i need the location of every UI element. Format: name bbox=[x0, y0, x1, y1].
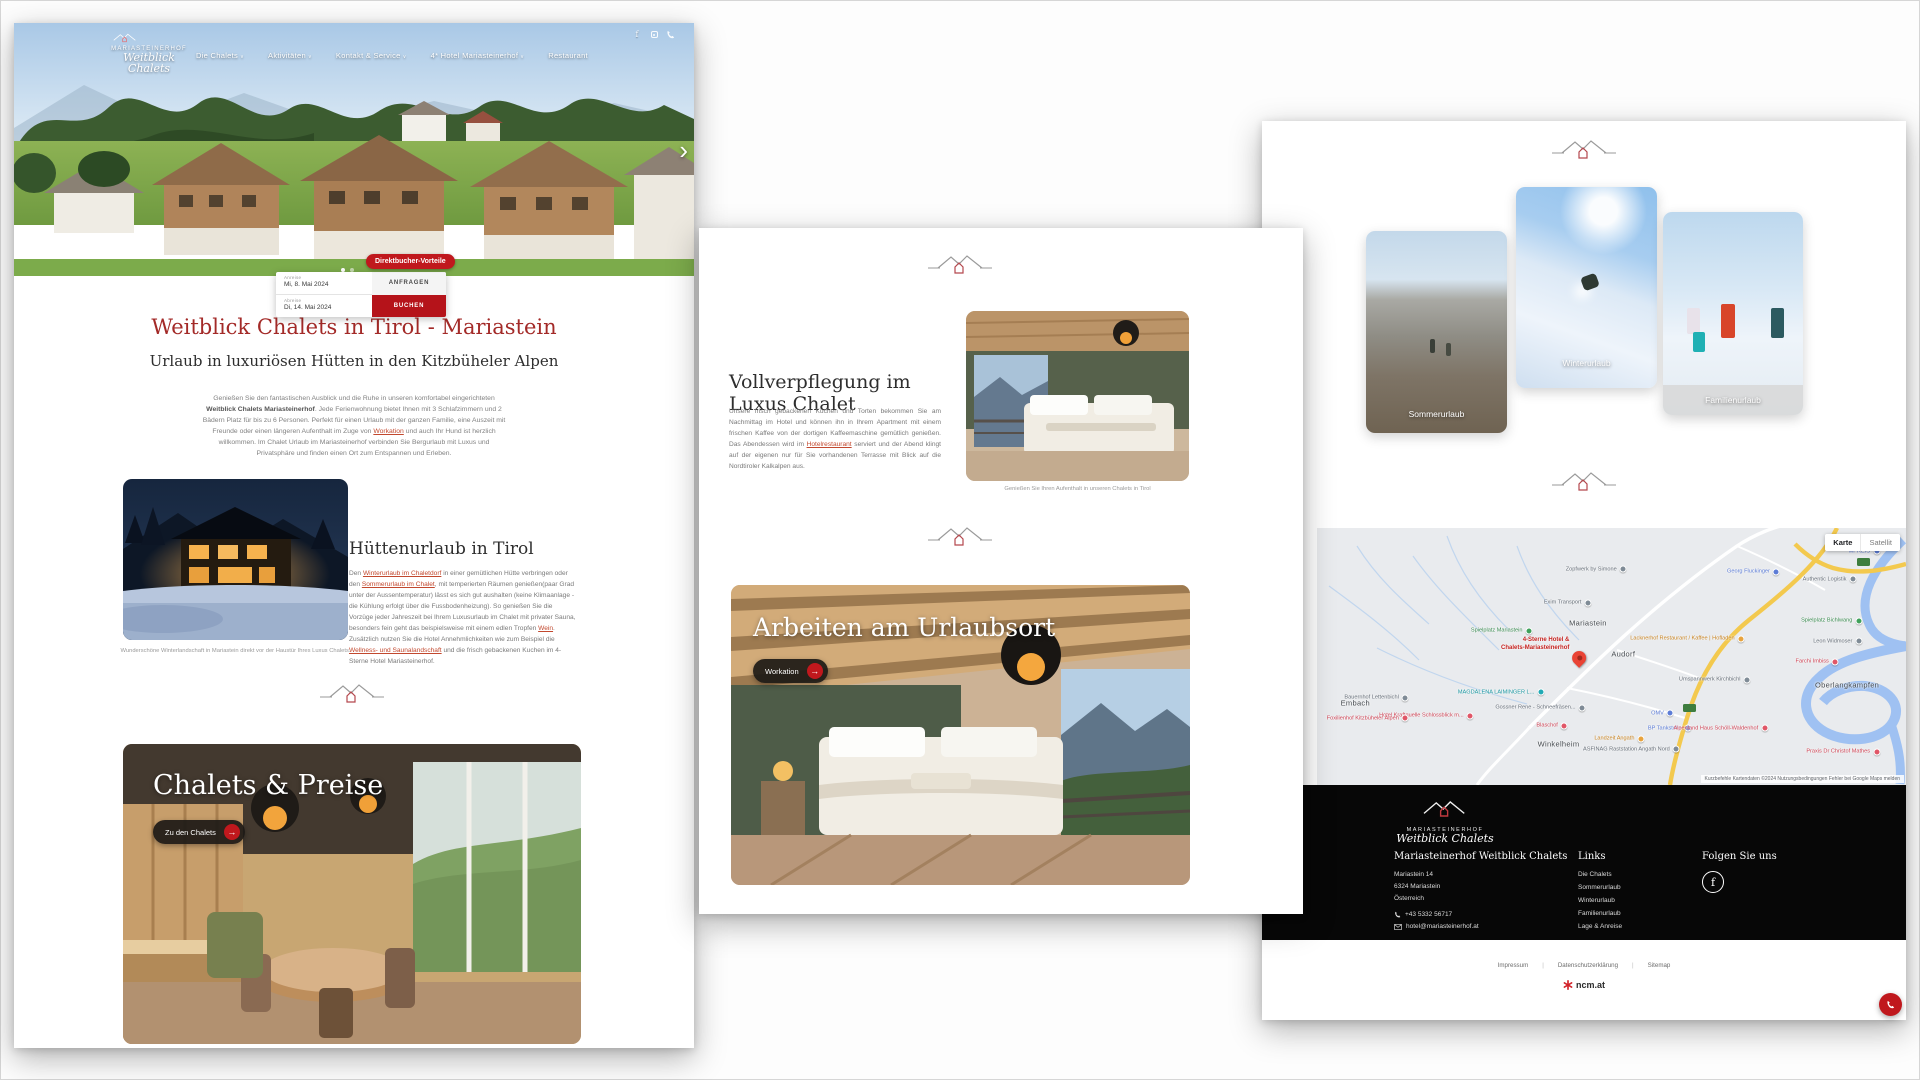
phone-icon bbox=[1886, 1000, 1895, 1009]
contact-fab-button[interactable] bbox=[1879, 993, 1902, 1016]
ncm-credit[interactable]: ncm.at bbox=[1262, 980, 1906, 990]
map-poi-marker[interactable]: Foxilienhof Kitzbüheler Alpen bbox=[1402, 715, 1409, 722]
poi-pin-icon bbox=[1873, 748, 1880, 755]
header-logo[interactable]: MARIASTEINERHOF Weitblick Chalets bbox=[110, 31, 188, 74]
footer-address-line: 6324 Mariastein bbox=[1394, 883, 1594, 890]
footer-link[interactable]: Sommerurlaub bbox=[1578, 884, 1622, 891]
poi-label: Authentic Logistik bbox=[1803, 576, 1847, 582]
poi-label: Foxilienhof Kitzbüheler Alpen bbox=[1327, 715, 1399, 721]
mountain-divider-icon bbox=[1552, 137, 1616, 163]
footer-address-line: Mariastein 14 bbox=[1394, 871, 1594, 878]
book-button[interactable]: BUCHEN bbox=[372, 295, 446, 318]
map-poi-marker[interactable]: Farchi Imbiss bbox=[1832, 658, 1839, 665]
departure-label: Abreise bbox=[284, 298, 372, 303]
workation-button[interactable]: Workation → bbox=[753, 659, 828, 683]
booking-date-fields: Anreise Mi, 8. Mai 2024 Abreise Di, 14. … bbox=[276, 272, 372, 317]
footer-phone[interactable]: +43 5332 56717 bbox=[1394, 911, 1594, 918]
workation-bedroom-image: Arbeiten am Urlaubsort Workation → bbox=[731, 585, 1190, 885]
poi-pin-icon bbox=[1738, 635, 1745, 642]
facebook-icon[interactable]: f bbox=[632, 30, 642, 40]
arrow-right-icon: → bbox=[224, 824, 240, 840]
footer-social-column: Folgen Sie uns f bbox=[1702, 851, 1777, 893]
google-map[interactable]: MariasteinAudorfEmbachWinkelheimOberlang… bbox=[1317, 528, 1906, 785]
map-poi-marker[interactable]: Leon Widmoser bbox=[1855, 638, 1862, 645]
map-poi-marker[interactable]: MAGDALENA LAIMINGER L... bbox=[1537, 689, 1544, 696]
poi-label: Leon Widmoser bbox=[1813, 638, 1852, 644]
footer-email[interactable]: hotel@mariasteinerhof.at bbox=[1394, 923, 1594, 930]
poi-pin-icon bbox=[1667, 710, 1674, 717]
poi-pin-icon bbox=[1832, 658, 1839, 665]
poi-label: OMV bbox=[1651, 710, 1664, 716]
caret-down-icon: ∨ bbox=[403, 54, 407, 60]
poi-label: Georg Fluckinger bbox=[1727, 569, 1770, 575]
facebook-icon[interactable]: f bbox=[1702, 871, 1724, 893]
map-poi-marker[interactable]: Georg Fluckinger bbox=[1773, 568, 1780, 575]
portfolio-canvas: MARIASTEINERHOF Weitblick Chalets Die Ch… bbox=[0, 0, 1920, 1080]
card-family[interactable]: Familienurlaub bbox=[1663, 212, 1803, 415]
zu-den-chalets-button[interactable]: Zu den Chalets → bbox=[153, 820, 245, 844]
poi-label: Lacknerhof Restaurant / Kaffee | Hoflade… bbox=[1630, 636, 1734, 642]
footer-link[interactable]: Winterurlaub bbox=[1578, 897, 1622, 904]
poi-label: Exim Transport bbox=[1544, 600, 1582, 606]
logo-script: Weitblick Chalets bbox=[1380, 833, 1510, 845]
map-town-label: Mariastein bbox=[1569, 619, 1607, 628]
poi-label: Farchi Imbiss bbox=[1796, 659, 1829, 665]
separator: | bbox=[1632, 962, 1634, 969]
map-poi-marker[interactable]: Gossner Rene - Schneefräsen... bbox=[1579, 704, 1586, 711]
nav-item[interactable]: 4* Hotel Mariasteinerhof∨ bbox=[431, 51, 525, 60]
footer-logo: MARIASTEINERHOF Weitblick Chalets bbox=[1380, 797, 1510, 845]
footer-follow-heading: Folgen Sie uns bbox=[1702, 851, 1777, 862]
poi-label: Landzeit Angath bbox=[1594, 736, 1634, 742]
map-town-label: Winkelheim bbox=[1538, 739, 1580, 748]
separator: | bbox=[1542, 962, 1544, 969]
page-subtitle: Urlaub in luxuriösen Hütten in den Kitzb… bbox=[124, 352, 584, 372]
phone-icon[interactable] bbox=[666, 30, 676, 40]
chalets-section-title: Chalets & Preise bbox=[153, 770, 383, 801]
map-poi-marker[interactable]: Lacknerhof Restaurant / Kaffee | Hoflade… bbox=[1738, 635, 1745, 642]
poi-pin-icon bbox=[1637, 735, 1644, 742]
map-type-control: Karte Satellit bbox=[1825, 534, 1900, 551]
workation-section-title: Arbeiten am Urlaubsort bbox=[753, 613, 1055, 642]
sommerurlaub-link[interactable]: Sommerurlaub im Chalet bbox=[362, 581, 435, 588]
poi-pin-icon bbox=[1743, 676, 1750, 683]
map-poi-marker[interactable]: Spielplatz Bichlwang bbox=[1855, 617, 1862, 624]
huette-paragraph: Den Winterurlaub im Chaletdorf in einer … bbox=[349, 569, 577, 667]
instagram-icon[interactable] bbox=[649, 30, 659, 40]
intro-paragraph: Genießen Sie den fantastischen Ausblick … bbox=[202, 393, 506, 459]
legal-link[interactable]: Impressum bbox=[1498, 962, 1529, 969]
card-label: Winterurlaub bbox=[1516, 358, 1657, 368]
hotelrestaurant-link[interactable]: Hotelrestaurant bbox=[807, 441, 852, 448]
legal-links: Impressum|Datenschutzerklärung|Sitemap bbox=[1262, 962, 1906, 969]
arrival-value: Mi, 8. Mai 2024 bbox=[284, 281, 372, 288]
legal-bar: Impressum|Datenschutzerklärung|Sitemap n… bbox=[1262, 940, 1906, 1020]
footer-link[interactable]: Lage & Anreise bbox=[1578, 923, 1622, 930]
poi-pin-icon bbox=[1467, 712, 1474, 719]
poi-pin-icon bbox=[1584, 599, 1591, 606]
page-services: Vollverpflegung im Luxus Chalet Unsere f… bbox=[699, 228, 1303, 914]
booking-widget: Anreise Mi, 8. Mai 2024 Abreise Di, 14. … bbox=[276, 272, 446, 317]
map-poi-marker[interactable]: Landzeit Angath bbox=[1637, 735, 1644, 742]
footer-link[interactable]: Familienurlaub bbox=[1578, 910, 1622, 917]
nav-item[interactable]: Kontakt & Service∨ bbox=[336, 51, 407, 60]
arrival-label: Anreise bbox=[284, 275, 372, 280]
map-poi-marker[interactable]: Blaschof bbox=[1561, 722, 1568, 729]
poi-pin-icon bbox=[1620, 566, 1627, 573]
footer-address-line: Österreich bbox=[1394, 895, 1594, 902]
card-winter[interactable]: Winterurlaub bbox=[1516, 187, 1657, 388]
footer-brand-heading: Mariasteinerhof Weitblick Chalets bbox=[1394, 851, 1594, 862]
departure-value: Di, 14. Mai 2024 bbox=[284, 304, 372, 311]
poi-pin-icon bbox=[1561, 722, 1568, 729]
map-poi-marker[interactable]: Bauernhof Lettenbichl bbox=[1402, 694, 1409, 701]
request-button[interactable]: ANFRAGEN bbox=[372, 272, 446, 295]
hero-carousel[interactable]: MARIASTEINERHOF Weitblick Chalets Die Ch… bbox=[14, 23, 694, 276]
poi-label: Umspannwerk Kirchbichl bbox=[1679, 677, 1741, 683]
arrow-right-icon: → bbox=[807, 663, 823, 679]
poi-pin-icon bbox=[1773, 568, 1780, 575]
caret-down-icon: ∨ bbox=[308, 54, 312, 60]
page-overview: SommerurlaubWinterurlaubFamilienurlaub bbox=[1262, 121, 1906, 1020]
poi-pin-icon bbox=[1855, 617, 1862, 624]
map-poi-marker[interactable]: OMV bbox=[1667, 710, 1674, 717]
card-label: Sommerurlaub bbox=[1366, 409, 1507, 419]
poi-label: Praxis Dr Christof Mathes bbox=[1806, 749, 1870, 755]
poi-pin-icon bbox=[1673, 746, 1680, 753]
workation-link[interactable]: Workation bbox=[373, 428, 403, 435]
map-poi-marker[interactable]: Alpenland Haus Schöll-Waldenhof bbox=[1761, 725, 1768, 732]
chalet-bedroom-image bbox=[966, 311, 1189, 481]
site-footer: MARIASTEINERHOF Weitblick Chalets Marias… bbox=[1262, 785, 1906, 940]
hotel-pin-label: 4-Sterne Hotel & Chalets-Mariasteinerhof bbox=[1501, 637, 1569, 652]
poi-label: Zopfwerk by Simone bbox=[1566, 566, 1617, 572]
main-nav: Die Chalets∨Aktivitäten∨Kontakt & Servic… bbox=[196, 51, 588, 60]
poi-pin-icon bbox=[1402, 715, 1409, 722]
map-poi-marker[interactable]: Exim Transport bbox=[1584, 599, 1591, 606]
map-poi-marker[interactable]: Spielplatz Mariastein bbox=[1526, 627, 1533, 634]
ncm-logo-icon bbox=[1563, 980, 1573, 990]
poi-label: Alpenland Haus Schöll-Waldenhof bbox=[1673, 725, 1758, 731]
nav-item[interactable]: Restaurant bbox=[548, 51, 588, 60]
mountain-divider-icon bbox=[1552, 469, 1616, 495]
wein-link[interactable]: Wein bbox=[538, 625, 553, 632]
map-poi-marker[interactable]: ASFINAG Raststation Angath Nord bbox=[1673, 746, 1680, 753]
footer-contact-column: Mariasteinerhof Weitblick Chalets Marias… bbox=[1394, 851, 1594, 935]
booking-buttons: ANFRAGEN BUCHEN bbox=[372, 272, 446, 317]
footer-links-heading: Links bbox=[1578, 851, 1622, 862]
poi-pin-icon bbox=[1855, 638, 1862, 645]
legal-link[interactable]: Datenschutzerklärung bbox=[1558, 962, 1618, 969]
huette-section-title: Hüttenurlaub in Tirol bbox=[349, 539, 589, 559]
map-town-label: Oberlangkampfen bbox=[1815, 680, 1879, 689]
mountain-logo-icon bbox=[110, 31, 140, 45]
direct-booking-badge[interactable]: Direktbucher-Vorteile bbox=[366, 254, 455, 269]
legal-link[interactable]: Sitemap bbox=[1648, 962, 1671, 969]
winterurlaub-link[interactable]: Winterurlaub im Chaletdorf bbox=[363, 570, 441, 577]
poi-pin-icon bbox=[1537, 689, 1544, 696]
footer-link[interactable]: Die Chalets bbox=[1578, 871, 1622, 878]
intro-bold: Weitblick Chalets Mariasteinerhof bbox=[206, 406, 315, 413]
card-summer[interactable]: Sommerurlaub bbox=[1366, 231, 1507, 433]
poi-pin-icon bbox=[1849, 576, 1856, 583]
poi-label: ASFINAG Raststation Angath Nord bbox=[1583, 746, 1670, 752]
mountain-divider-icon bbox=[320, 681, 384, 707]
map-poi-marker[interactable]: Hotel Kraftquelle Schlossblick m... bbox=[1467, 712, 1474, 719]
caret-down-icon: ∨ bbox=[240, 54, 244, 60]
logo-script: Weitblick Chalets bbox=[110, 52, 188, 74]
poi-label: Gossner Rene - Schneefräsen... bbox=[1495, 705, 1575, 711]
page-home: MARIASTEINERHOF Weitblick Chalets Die Ch… bbox=[14, 23, 694, 1048]
map-attribution: Kurzbefehle Kartendaten ©2024 Nutzungsbe… bbox=[1701, 775, 1904, 783]
departure-date-field[interactable]: Abreise Di, 14. Mai 2024 bbox=[276, 295, 372, 317]
map-button-satellit[interactable]: Satellit bbox=[1860, 534, 1900, 551]
poi-label: Blaschof bbox=[1536, 723, 1557, 729]
mountain-divider-icon bbox=[928, 524, 992, 550]
map-poi-marker[interactable]: Zopfwerk by Simone bbox=[1620, 566, 1627, 573]
nav-item[interactable]: Aktivitäten∨ bbox=[268, 51, 312, 60]
mail-icon bbox=[1394, 924, 1402, 930]
poi-pin-icon bbox=[1526, 627, 1533, 634]
map-button-karte[interactable]: Karte bbox=[1825, 534, 1860, 551]
winter-chalet-night-image bbox=[123, 479, 348, 640]
poi-label: Spielplatz Bichlwang bbox=[1801, 618, 1852, 624]
nav-item[interactable]: Die Chalets∨ bbox=[196, 51, 244, 60]
card-label: Familienurlaub bbox=[1663, 395, 1803, 405]
poi-label: Spielplatz Mariastein bbox=[1471, 628, 1523, 634]
map-town-label: Audorf bbox=[1611, 649, 1635, 658]
huette-image-caption: Wunderschöne Winterlandschaft in Mariast… bbox=[88, 648, 383, 654]
map-poi-marker[interactable]: Umspannwerk Kirchbichl bbox=[1743, 676, 1750, 683]
chalet-dining-room-image: Chalets & Preise Zu den Chalets → bbox=[123, 744, 581, 1044]
map-poi-marker[interactable]: Praxis Dr Christof Mathes bbox=[1873, 748, 1880, 755]
page-title: Weitblick Chalets in Tirol - Mariastein bbox=[14, 315, 694, 339]
poi-label: MAGDALENA LAIMINGER L... bbox=[1458, 689, 1534, 695]
caret-down-icon: ∨ bbox=[520, 54, 524, 60]
food-paragraph: Unsere frisch gebackenen Kuchen und Tort… bbox=[729, 406, 941, 472]
phone-icon bbox=[1394, 911, 1401, 918]
poi-label: Bauernhof Lettenbichl bbox=[1344, 695, 1398, 701]
carousel-next-arrow[interactable]: › bbox=[679, 137, 688, 163]
footer-links-column: Links Die ChaletsSommerurlaubWinterurlau… bbox=[1578, 851, 1622, 936]
mountain-logo-icon bbox=[1417, 797, 1473, 821]
map-poi-marker[interactable]: Authentic Logistik bbox=[1849, 576, 1856, 583]
poi-pin-icon bbox=[1761, 725, 1768, 732]
header-social: f bbox=[632, 30, 676, 40]
poi-pin-icon bbox=[1579, 704, 1586, 711]
arrival-date-field[interactable]: Anreise Mi, 8. Mai 2024 bbox=[276, 272, 372, 295]
footer-address: Mariastein 146324 MariasteinÖsterreich bbox=[1394, 871, 1594, 902]
food-image-caption: Genießen Sie Ihren Aufenthalt in unseren… bbox=[966, 486, 1189, 492]
mountain-divider-icon bbox=[928, 252, 992, 278]
poi-pin-icon bbox=[1402, 694, 1409, 701]
